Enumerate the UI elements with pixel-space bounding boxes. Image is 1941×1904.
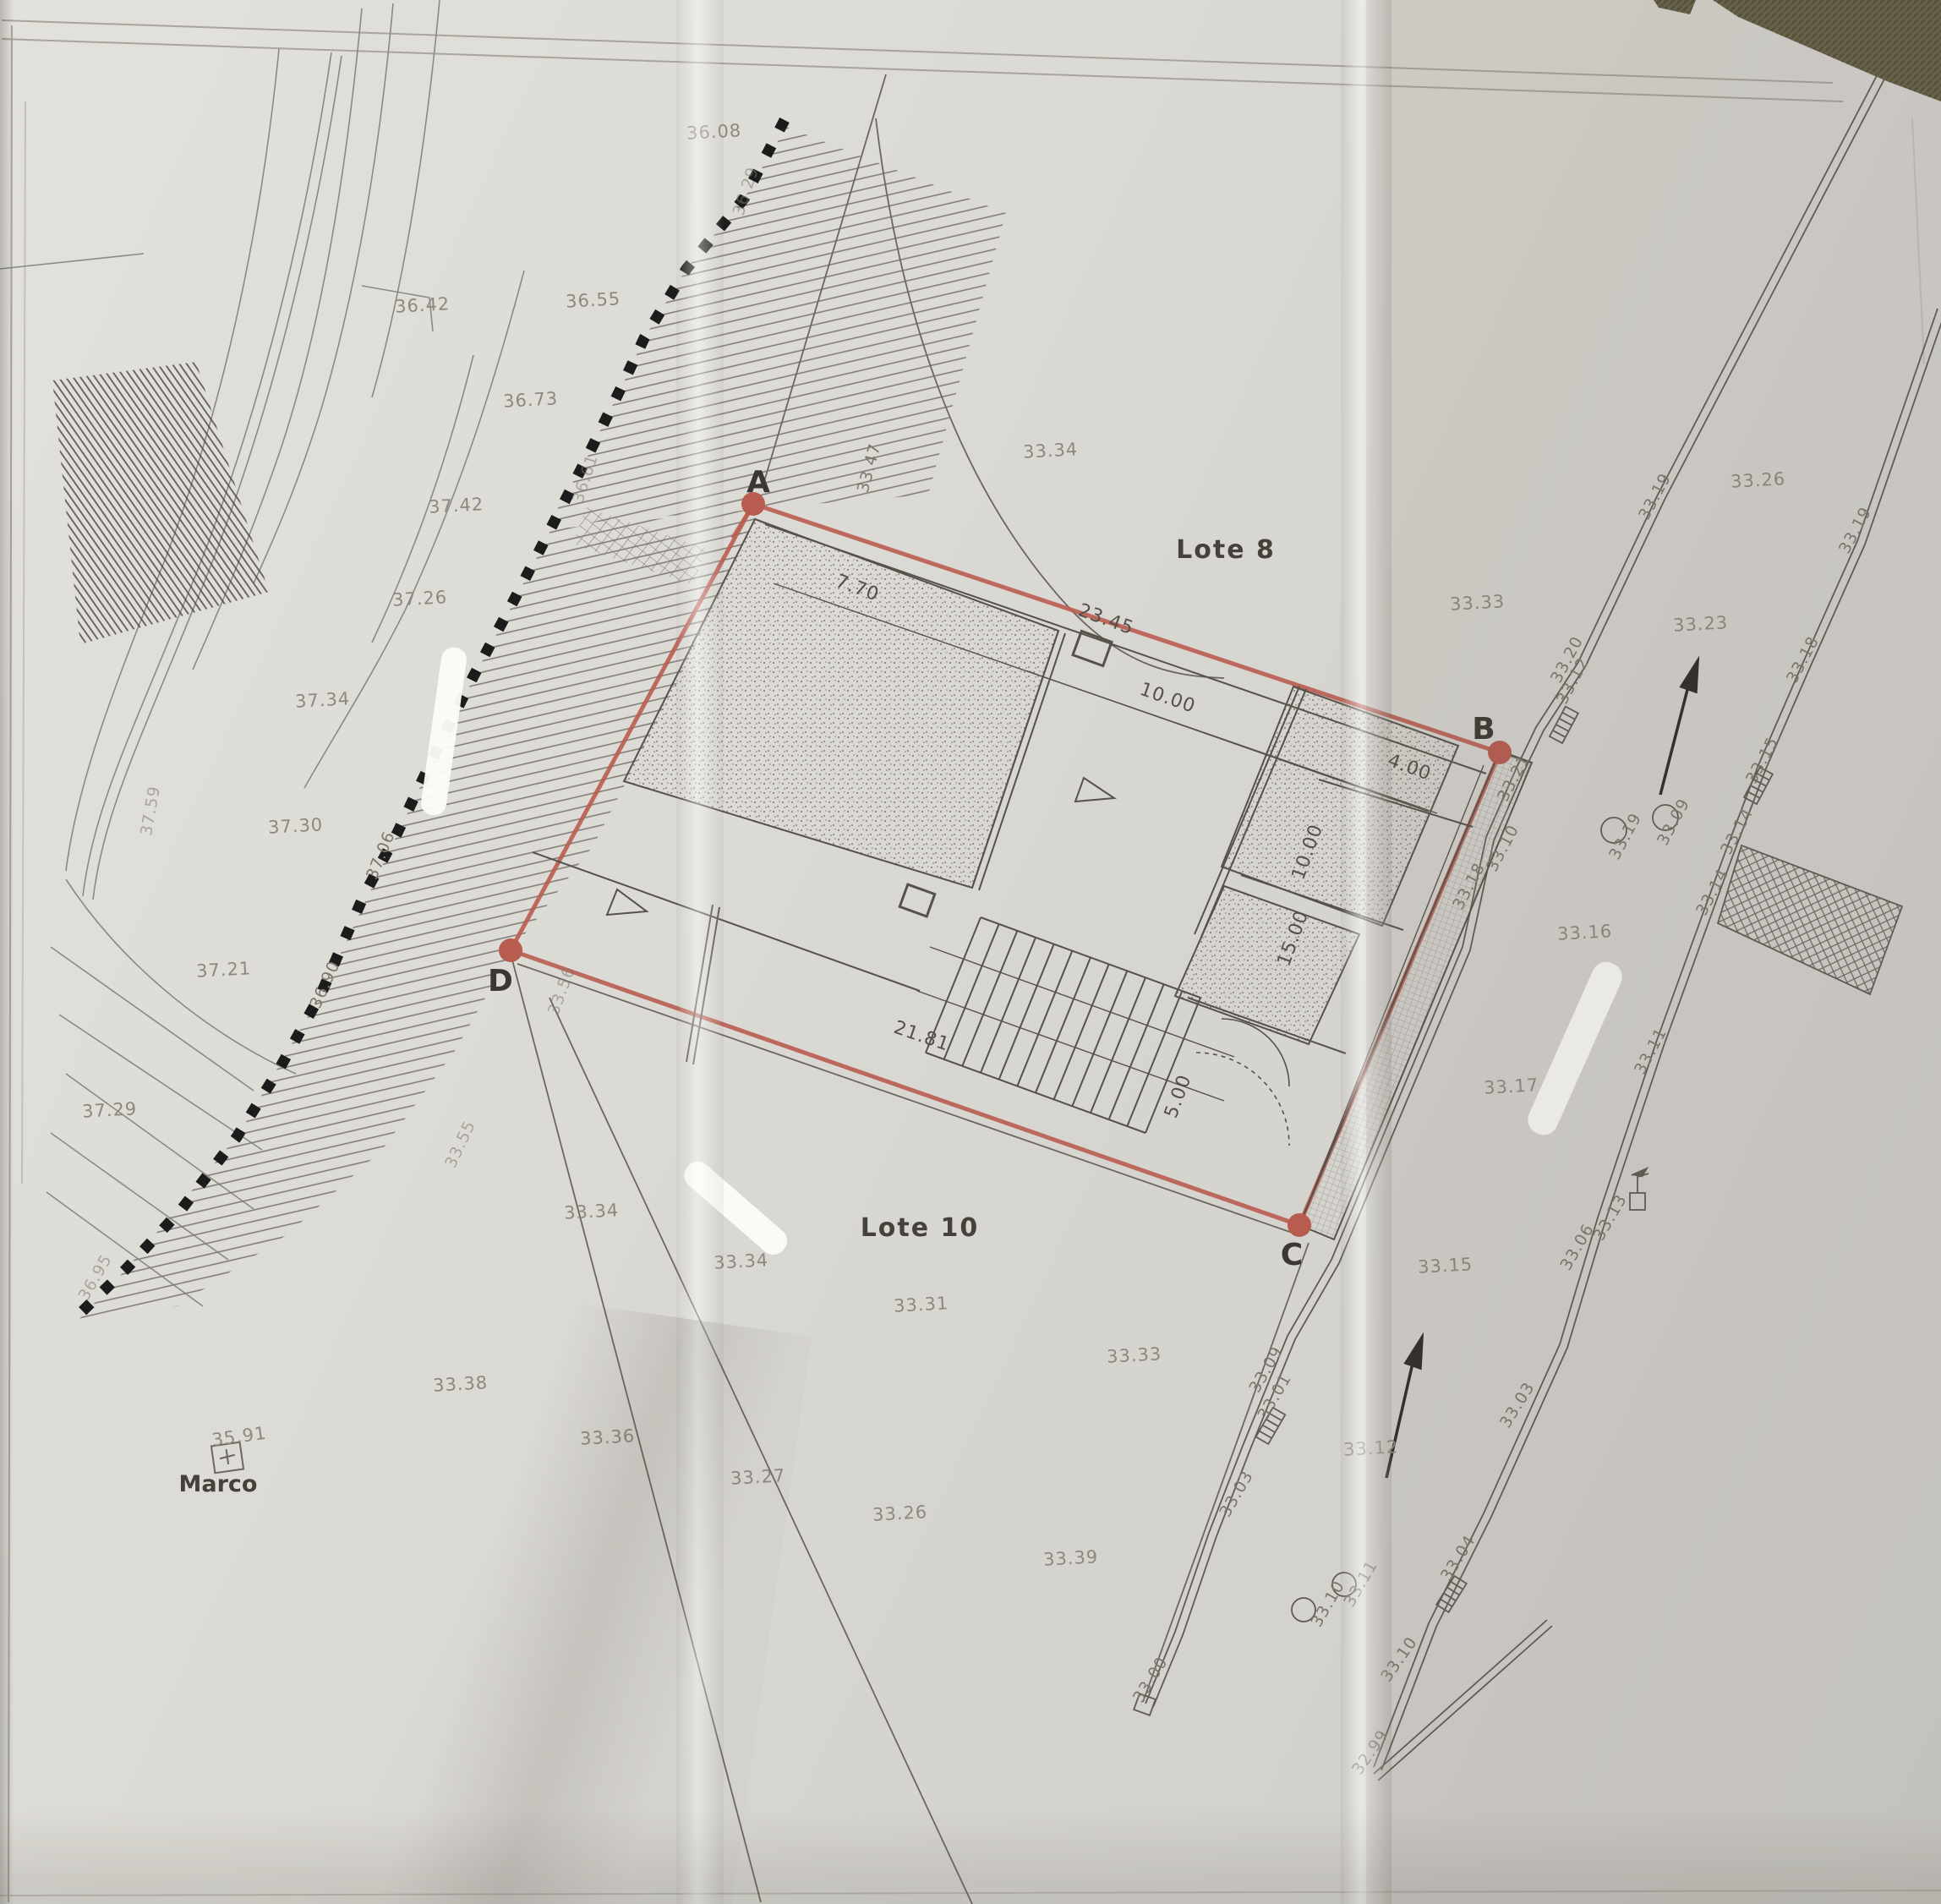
stippled-room-small [1175,886,1359,1044]
table-fabric-corner [1654,0,1941,101]
elevation-label: 33.26 [872,1502,927,1524]
chainage-label: 33.09 [1654,796,1693,849]
corner-point-dot [499,938,522,962]
chainage-label: 32.99 [1348,1726,1392,1778]
chainage-label: 33.04 [1437,1532,1479,1584]
elevation-label: 37.21 [195,958,251,981]
chainage-label: 33.11 [1340,1557,1381,1610]
dimension-label: 5.00 [1161,1072,1196,1121]
chainage-label: 33.56 [544,964,579,1017]
lot-label: Lote 8 [1176,535,1276,565]
corner-point-dot [1288,1213,1311,1237]
column-symbol [899,884,935,916]
elevation-label: 36.08 [686,120,741,143]
chainage-label: 33.13 [1589,1191,1631,1244]
chainage-label: 33.11 [1631,1025,1670,1078]
corner-label: B [1472,712,1495,747]
corner-label: D [488,964,513,999]
chainage-label: 33.55 [441,1118,479,1171]
elevation-label: 33.16 [1556,921,1612,944]
chainage-label: 33.15 [1742,734,1782,787]
chainage-label: 37.59 [137,785,164,837]
elevation-label: 37.26 [391,587,447,610]
elevation-label: 36.73 [502,388,558,411]
elevation-label: 33.34 [1022,439,1078,462]
crosshatch-crossing [1718,845,1902,994]
elevation-label: 33.38 [432,1372,488,1395]
elevation-label: 33.33 [1449,591,1505,614]
dark-hatched-area [52,362,269,644]
chainage-label: 33.03 [1216,1468,1257,1520]
elevation-label: 33.12 [1342,1436,1398,1459]
chainage-label: 33.18 [1783,633,1823,687]
elevation-label: 33.39 [1042,1546,1098,1569]
elevation-label: 33.33 [1106,1343,1162,1366]
elevation-label: 33.26 [1730,468,1785,491]
elevation-label: 35.91 [211,1423,268,1451]
elevation-label: 37.42 [428,494,484,517]
elevation-label: 33.36 [579,1425,635,1448]
photo-of-site-plan: Lote 8Lote 10ABCD7.7023.4510.004.0010.00… [0,0,1941,1904]
site-plan-drawing: Lote 8Lote 10ABCD7.7023.4510.004.0010.00… [0,0,1941,1904]
stairs [926,917,1200,1133]
marco-label: Marco [179,1471,258,1497]
elevation-label: 33.31 [893,1293,949,1316]
elevation-label: 33.23 [1672,612,1728,635]
dimension-label: 21.81 [891,1017,952,1056]
elevation-label: 37.29 [81,1098,137,1121]
elevation-label: 33.15 [1417,1254,1473,1277]
lot-label: Lote 10 [861,1213,980,1243]
corner-point-dot [741,492,765,516]
elevation-label: 36.42 [394,293,450,316]
chainage-label: 33.19 [1635,470,1675,523]
elevation-label: 33.34 [563,1200,619,1223]
corner-point-dot [1488,741,1512,764]
level-triangle-marker [1075,778,1114,802]
elevation-label: 37.34 [294,688,350,711]
dimension-label: 10.00 [1137,679,1198,718]
elevation-label: 33.27 [730,1465,785,1488]
elevation-label: 37.30 [267,814,323,837]
lamp-post-icon [1630,1168,1648,1210]
level-triangle-marker [607,889,647,915]
elevation-label: 36.55 [565,288,621,311]
column-symbol [1073,631,1112,665]
elevation-label: 33.17 [1483,1075,1539,1097]
elevation-label: 33.34 [713,1250,768,1272]
corner-label: C [1281,1238,1303,1272]
